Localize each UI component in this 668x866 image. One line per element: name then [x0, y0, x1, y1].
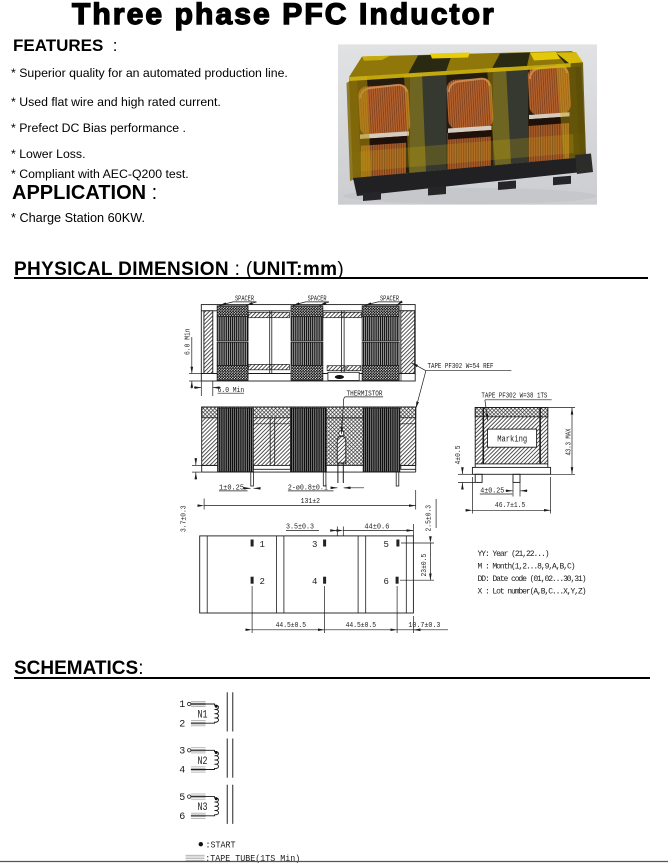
svg-text:6.0 Min: 6.0 Min — [185, 328, 193, 355]
svg-text:46.7±1.5: 46.7±1.5 — [495, 502, 526, 510]
svg-text:6.0 Min: 6.0 Min — [218, 387, 245, 395]
svg-text:6: 6 — [384, 577, 389, 587]
svg-text:SPACER: SPACER — [308, 296, 328, 304]
svg-text:2: 2 — [179, 719, 185, 730]
svg-text:3.7±0.3: 3.7±0.3 — [181, 505, 189, 532]
svg-text:4: 4 — [179, 766, 185, 777]
svg-text:M : Month(1,2...8,9,A,B,C): M : Month(1,2...8,9,A,B,C) — [478, 562, 576, 571]
svg-text:X : Lot number(A,B,C...X,Y,Z): X : Lot number(A,B,C...X,Y,Z) — [478, 587, 587, 596]
svg-text::START: :START — [206, 841, 237, 851]
svg-text:N1: N1 — [198, 710, 208, 722]
svg-text:Marking: Marking — [497, 435, 527, 445]
svg-text:1: 1 — [179, 700, 185, 711]
svg-text:131±2: 131±2 — [301, 498, 321, 506]
svg-text:YY: Year (21,22...): YY: Year (21,22...) — [478, 550, 550, 559]
svg-text:44.5±0.5: 44.5±0.5 — [276, 622, 307, 630]
svg-text:4±0.5: 4±0.5 — [455, 445, 463, 464]
svg-text::TAPE TUBE(1TS Min): :TAPE TUBE(1TS Min) — [205, 854, 300, 864]
svg-text:2.5±0.3: 2.5±0.3 — [426, 504, 434, 531]
svg-text:4: 4 — [312, 577, 317, 587]
svg-text:1: 1 — [260, 540, 265, 550]
svg-text:6: 6 — [179, 812, 185, 823]
svg-text:3: 3 — [179, 747, 185, 758]
svg-text:TAPE PF302 W=38 1TS: TAPE PF302 W=38 1TS — [481, 393, 547, 401]
svg-text:N2: N2 — [198, 756, 208, 768]
svg-text:SPACER: SPACER — [380, 296, 400, 304]
svg-text:TAPE PF302 W=54 REF: TAPE PF302 W=54 REF — [428, 363, 494, 371]
svg-text:N3: N3 — [198, 802, 208, 814]
svg-text:23±0.5: 23±0.5 — [421, 553, 429, 576]
svg-text:5: 5 — [179, 793, 185, 804]
svg-text:5: 5 — [384, 540, 389, 550]
svg-text:2: 2 — [260, 577, 265, 587]
svg-text:3: 3 — [312, 540, 317, 550]
svg-text:SPACER: SPACER — [235, 296, 255, 304]
svg-text:44.5±0.5: 44.5±0.5 — [346, 622, 377, 630]
svg-text:DD: Date code (01,02...30,31): DD: Date code (01,02...30,31) — [478, 575, 587, 584]
